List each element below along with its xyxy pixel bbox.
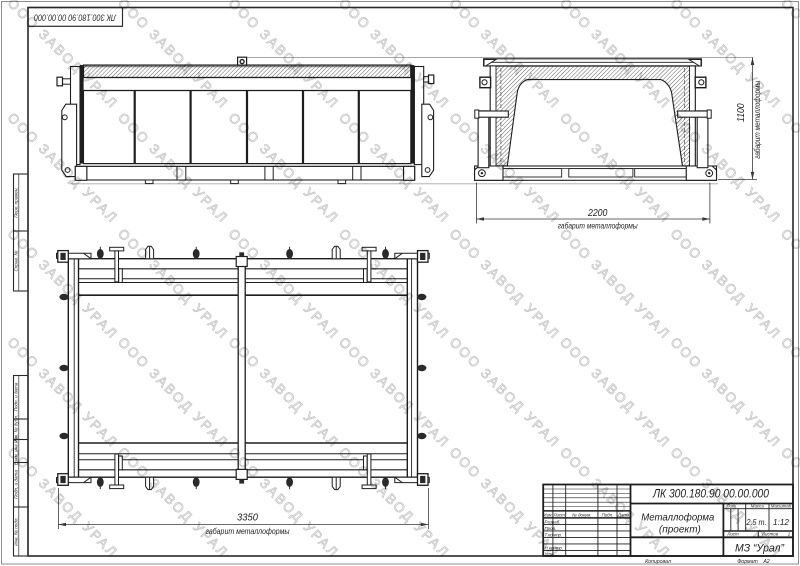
svg-text:Подп. и дата: Подп. и дата	[14, 382, 19, 411]
svg-text:Формат: Формат	[737, 559, 758, 565]
svg-text:Масштаб: Масштаб	[771, 503, 792, 508]
svg-text:Лист: Лист	[553, 512, 566, 517]
svg-text:габарит металлоформы: габарит металлоформы	[206, 526, 290, 536]
svg-text:Масса: Масса	[751, 503, 765, 508]
svg-text:Перв. примен.: Перв. примен.	[14, 187, 19, 218]
svg-text:Изм.: Изм.	[543, 512, 552, 517]
svg-text:(проект): (проект)	[659, 524, 701, 536]
svg-text:№ докум.: № докум.	[572, 512, 591, 517]
svg-text:Подп. и дата: Подп. и дата	[14, 470, 19, 499]
svg-text:2200: 2200	[587, 208, 608, 219]
svg-text:Копировал: Копировал	[645, 559, 671, 565]
svg-text:Металлоформа: Металлоформа	[641, 512, 714, 524]
svg-text:ЛК 300.180.90 00.00.000: ЛК 300.180.90 00.00.000	[33, 13, 116, 23]
svg-text:Подп.: Подп.	[602, 512, 614, 517]
svg-text:Разраб.: Разраб.	[545, 519, 561, 524]
svg-text:3350: 3350	[237, 513, 258, 524]
svg-text:Лист: Лист	[726, 532, 739, 537]
svg-text:А2: А2	[762, 559, 769, 565]
svg-text:1100: 1100	[736, 103, 747, 122]
svg-text:Справ. №: Справ. №	[14, 251, 19, 272]
svg-text:Инв. № подл.: Инв. № подл.	[14, 517, 19, 546]
svg-text:Пров.: Пров.	[545, 526, 557, 531]
svg-text:1:12: 1:12	[773, 517, 789, 527]
